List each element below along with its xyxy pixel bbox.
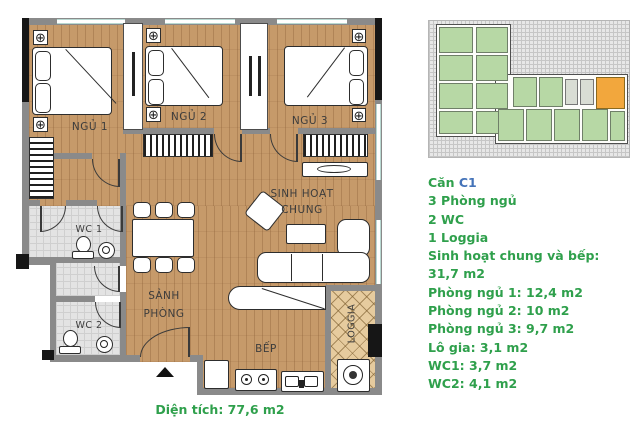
wall (120, 153, 126, 206)
wardrobe (143, 134, 213, 157)
pillow (148, 79, 164, 105)
apartment-unit-code: C1 (459, 175, 477, 190)
wall (29, 200, 40, 206)
window (376, 104, 381, 180)
nightstand-icon: ⊕ (33, 117, 48, 132)
window (57, 19, 125, 24)
wardrobe (303, 134, 368, 157)
wall (56, 296, 95, 302)
room-label-hall-2: PHÒNG (134, 308, 194, 320)
chair (177, 257, 195, 273)
wall-black (42, 350, 54, 360)
key-plan-core (565, 79, 578, 105)
door-leaf (188, 327, 190, 357)
apartment-floor-plan: ⊕ ⊕ ⊕ ⊕ ⊕ ⊕ (0, 0, 425, 440)
info-line: Phòng ngủ 1: 12,4 m2 (428, 284, 633, 302)
window (376, 220, 381, 284)
room-label-living-2: CHUNG (262, 204, 342, 216)
burner-icon (241, 374, 252, 385)
wall-black (16, 254, 29, 269)
sofa (257, 252, 370, 283)
sofa-seam (322, 254, 323, 281)
chair (155, 202, 173, 218)
outside-area (22, 362, 203, 440)
tv-icon (317, 165, 351, 173)
stove (235, 369, 277, 391)
info-line: 1 Loggia (428, 229, 633, 247)
key-plan-unit (582, 109, 608, 141)
key-plan-unit (610, 111, 625, 141)
room-label-bedroom2: NGỦ 2 (159, 111, 219, 123)
kitchen-bar (228, 286, 326, 310)
door-leaf (296, 134, 298, 162)
toilet-tank (59, 346, 81, 354)
window (277, 19, 347, 24)
key-plan-unit (498, 109, 524, 141)
door-leaf (118, 266, 120, 292)
nightstand-icon: ⊕ (352, 108, 366, 122)
wall (66, 200, 97, 206)
key-plan-unit (439, 83, 473, 109)
toilet-tank (72, 251, 94, 259)
total-area-label: Diện tích: 77,6 m2 (120, 402, 320, 417)
pillow (349, 79, 364, 105)
info-line: WC2: 4,1 m2 (428, 375, 633, 393)
apartment-title-prefix: Căn (428, 175, 455, 190)
info-line: Sinh hoạt chung và bếp: (428, 247, 633, 265)
kitchen-cabinet (204, 360, 229, 389)
pillow (349, 50, 364, 76)
pillow (35, 51, 51, 81)
info-line: 3 Phòng ngủ (428, 192, 633, 210)
key-plan-unit (476, 55, 508, 81)
key-plan-unit (526, 109, 552, 141)
wall-black (375, 18, 382, 100)
floor-plan-page: ⊕ ⊕ ⊕ ⊕ ⊕ ⊕ (0, 0, 640, 440)
nightstand-icon: ⊕ (146, 28, 161, 43)
key-plan-unit (439, 111, 473, 134)
toilet (63, 330, 78, 347)
room-label-wc2: WC 2 (64, 320, 114, 331)
room-label-wc1: WC 1 (64, 224, 114, 235)
chair (133, 257, 151, 273)
faucet-icon (299, 380, 304, 388)
wall (50, 258, 56, 362)
wardrobe (29, 137, 54, 199)
wash-basin (98, 242, 115, 259)
sofa-seam (291, 254, 292, 281)
wall-black (368, 324, 382, 357)
apartment-info-panel: Căn C1 3 Phòng ngủ 2 WC 1 Loggia Sinh ho… (428, 174, 633, 394)
chair (177, 202, 195, 218)
door-leaf (118, 159, 120, 187)
wall (53, 153, 92, 159)
info-line: 31,7 m2 (428, 265, 633, 283)
shaft (123, 23, 143, 130)
key-plan-unit (513, 77, 537, 107)
shaft (240, 23, 268, 130)
window (165, 19, 235, 24)
nightstand-icon: ⊕ (352, 29, 366, 43)
room-label-loggia: LOGGIA (347, 289, 358, 359)
kitchen-sink (281, 371, 324, 392)
door-leaf (240, 134, 242, 162)
key-plan-core (580, 79, 594, 105)
key-plan-unit (476, 27, 508, 53)
info-line: WC1: 3,7 m2 (428, 357, 633, 375)
door-leaf (121, 206, 123, 232)
room-label-bedroom3: NGỦ 3 (280, 115, 340, 127)
wall-black (22, 18, 29, 102)
burner-icon (258, 374, 269, 385)
dining-table (132, 219, 194, 257)
washing-machine (337, 359, 370, 392)
key-plan-unit (554, 109, 580, 141)
info-line: Phòng ngủ 3: 9,7 m2 (428, 320, 633, 338)
pillow (148, 50, 164, 76)
key-plan-unit (539, 77, 563, 107)
wash-basin (96, 336, 113, 353)
info-line: Phòng ngủ 2: 10 m2 (428, 302, 633, 320)
key-plan-unit (439, 55, 473, 81)
room-label-hall-1: SẢNH (134, 290, 194, 302)
room-label-kitchen: BẾP (236, 343, 296, 355)
room-label-living-1: SINH HOẠT (262, 188, 342, 200)
wall (50, 355, 140, 362)
key-plan-highlighted-unit (596, 77, 625, 109)
door-leaf (119, 302, 121, 328)
pillow (35, 83, 51, 113)
entrance-arrow-icon (156, 367, 174, 377)
apartment-title: Căn C1 (428, 174, 633, 192)
door-leaf (40, 206, 42, 232)
chair (133, 202, 151, 218)
room-label-bedroom1: NGỦ 1 (60, 121, 120, 133)
coffee-table (286, 224, 326, 244)
info-line: 2 WC (428, 211, 633, 229)
key-plan-unit (476, 83, 508, 109)
info-line: Lô gia: 3,1 m2 (428, 339, 633, 357)
nightstand-icon: ⊕ (33, 30, 48, 45)
chair (155, 257, 173, 273)
key-plan-unit (439, 27, 473, 53)
key-plan (425, 5, 638, 163)
